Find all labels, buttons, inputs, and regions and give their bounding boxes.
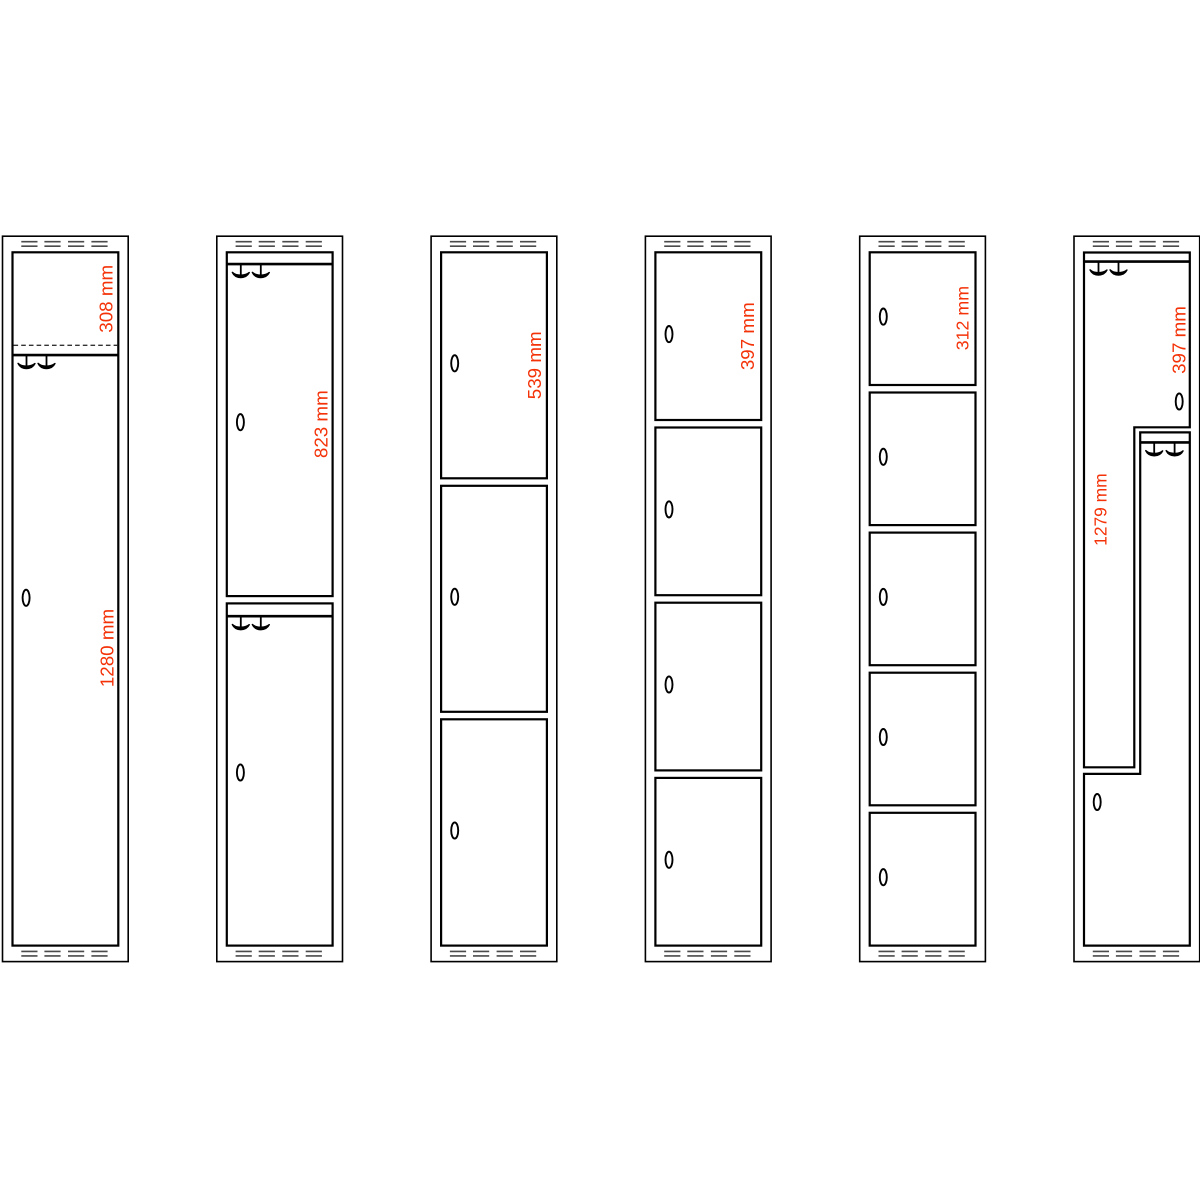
svg-text:397 mm: 397 mm (737, 302, 758, 370)
svg-text:397 mm: 397 mm (1169, 306, 1190, 374)
svg-text:1280 mm: 1280 mm (97, 609, 118, 687)
svg-text:312 mm: 312 mm (952, 286, 972, 350)
svg-text:308 mm: 308 mm (96, 265, 117, 333)
svg-text:1279 mm: 1279 mm (1091, 473, 1111, 545)
svg-text:823 mm: 823 mm (310, 390, 331, 458)
svg-text:539 mm: 539 mm (524, 331, 545, 399)
